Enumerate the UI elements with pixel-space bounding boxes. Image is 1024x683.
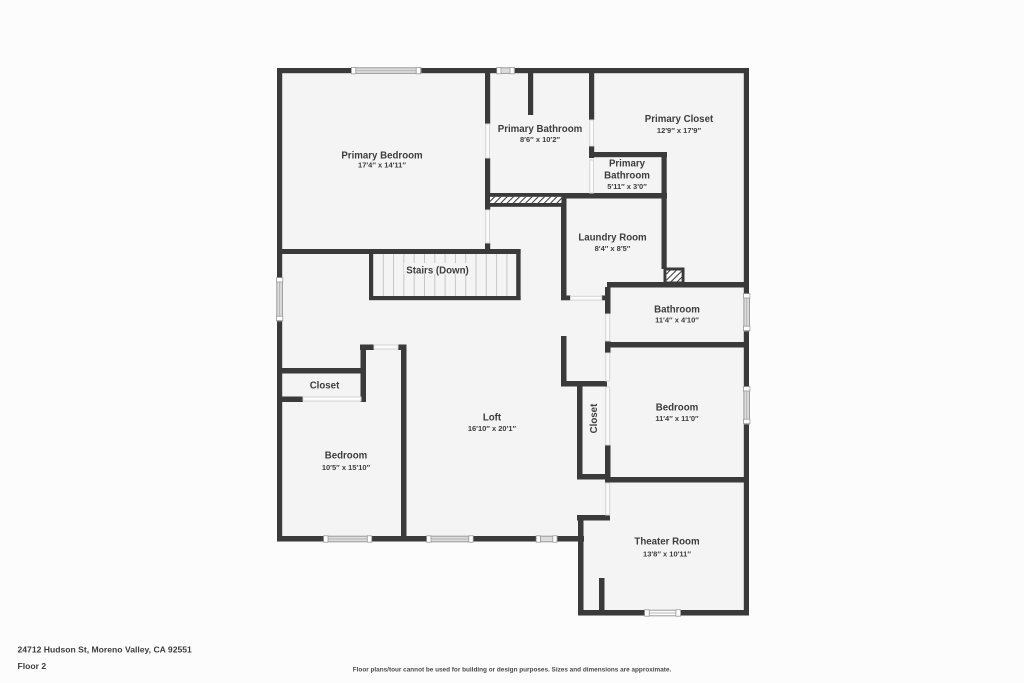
svg-text:8′6″ x 10′2″: 8′6″ x 10′2″ xyxy=(520,135,560,144)
svg-text:Primary: Primary xyxy=(609,158,646,169)
svg-text:8′4″ x 8′5″: 8′4″ x 8′5″ xyxy=(595,244,631,253)
svg-text:24712 Hudson St, Moreno Valley: 24712 Hudson St, Moreno Valley, CA 92551 xyxy=(18,645,193,655)
svg-text:5′11″ x 3′0″: 5′11″ x 3′0″ xyxy=(607,182,647,191)
svg-text:Bedroom: Bedroom xyxy=(656,403,699,414)
svg-text:11′4″ x 4′10″: 11′4″ x 4′10″ xyxy=(655,315,699,324)
svg-text:Bedroom: Bedroom xyxy=(325,451,368,462)
svg-text:Theater Room: Theater Room xyxy=(634,536,700,547)
svg-text:Closet: Closet xyxy=(589,403,600,433)
svg-text:Loft: Loft xyxy=(483,413,502,424)
svg-text:Laundry Room: Laundry Room xyxy=(578,233,647,244)
svg-text:Primary Bathroom: Primary Bathroom xyxy=(498,124,583,135)
svg-text:10′5″ x 15′10″: 10′5″ x 15′10″ xyxy=(322,463,371,472)
svg-text:13′8″ x 10′11″: 13′8″ x 10′11″ xyxy=(643,550,691,559)
svg-text:Floor 2: Floor 2 xyxy=(18,661,47,671)
svg-text:17′4″ x 14′11″: 17′4″ x 14′11″ xyxy=(358,161,406,170)
svg-text:Bathroom: Bathroom xyxy=(604,170,650,181)
svg-text:Bathroom: Bathroom xyxy=(654,305,700,316)
svg-text:Closet: Closet xyxy=(310,381,340,392)
svg-text:Stairs (Down): Stairs (Down) xyxy=(406,265,468,276)
svg-text:12′9″ x 17′9″: 12′9″ x 17′9″ xyxy=(657,126,702,135)
svg-text:16′10″ x 20′1″: 16′10″ x 20′1″ xyxy=(468,424,517,433)
svg-text:Floor plans/tour cannot be use: Floor plans/tour cannot be used for buil… xyxy=(353,667,672,674)
svg-text:11′4″ x 11′0″: 11′4″ x 11′0″ xyxy=(655,414,699,423)
svg-text:Primary Closet: Primary Closet xyxy=(645,114,714,125)
